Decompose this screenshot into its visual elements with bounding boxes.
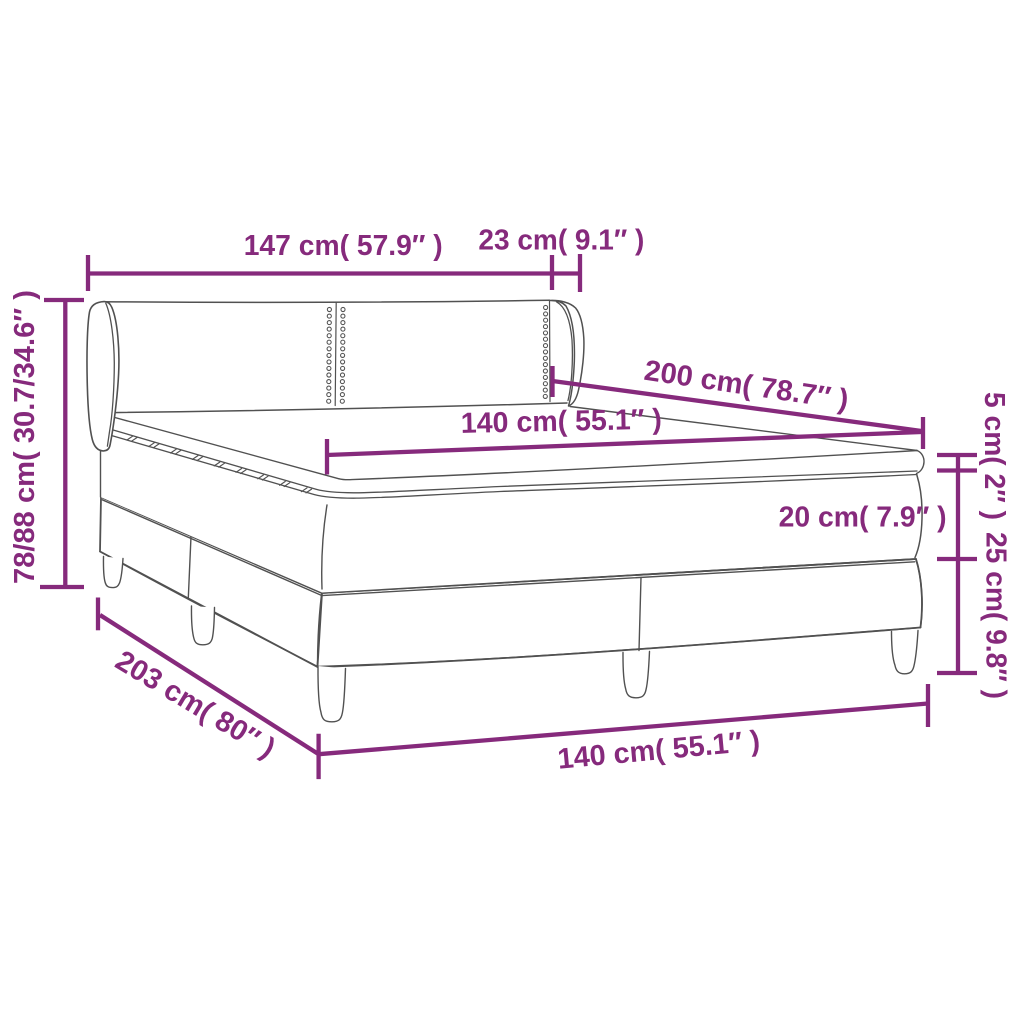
svg-text:25 cm( 9.8″ ): 25 cm( 9.8″ ) [980,532,1012,699]
svg-text:78/88 cm( 30.7/34.6″ ): 78/88 cm( 30.7/34.6″ ) [9,290,41,584]
svg-text:20 cm( 7.9″ ): 20 cm( 7.9″ ) [779,501,947,533]
svg-text:23 cm( 9.1″ ): 23 cm( 9.1″ ) [478,225,644,257]
svg-text:140 cm( 55.1″ ): 140 cm( 55.1″ ) [460,404,662,440]
svg-text:5 cm( 2″ ): 5 cm( 2″ ) [978,392,1010,520]
svg-text:147 cm( 57.9″ ): 147 cm( 57.9″ ) [244,230,443,262]
